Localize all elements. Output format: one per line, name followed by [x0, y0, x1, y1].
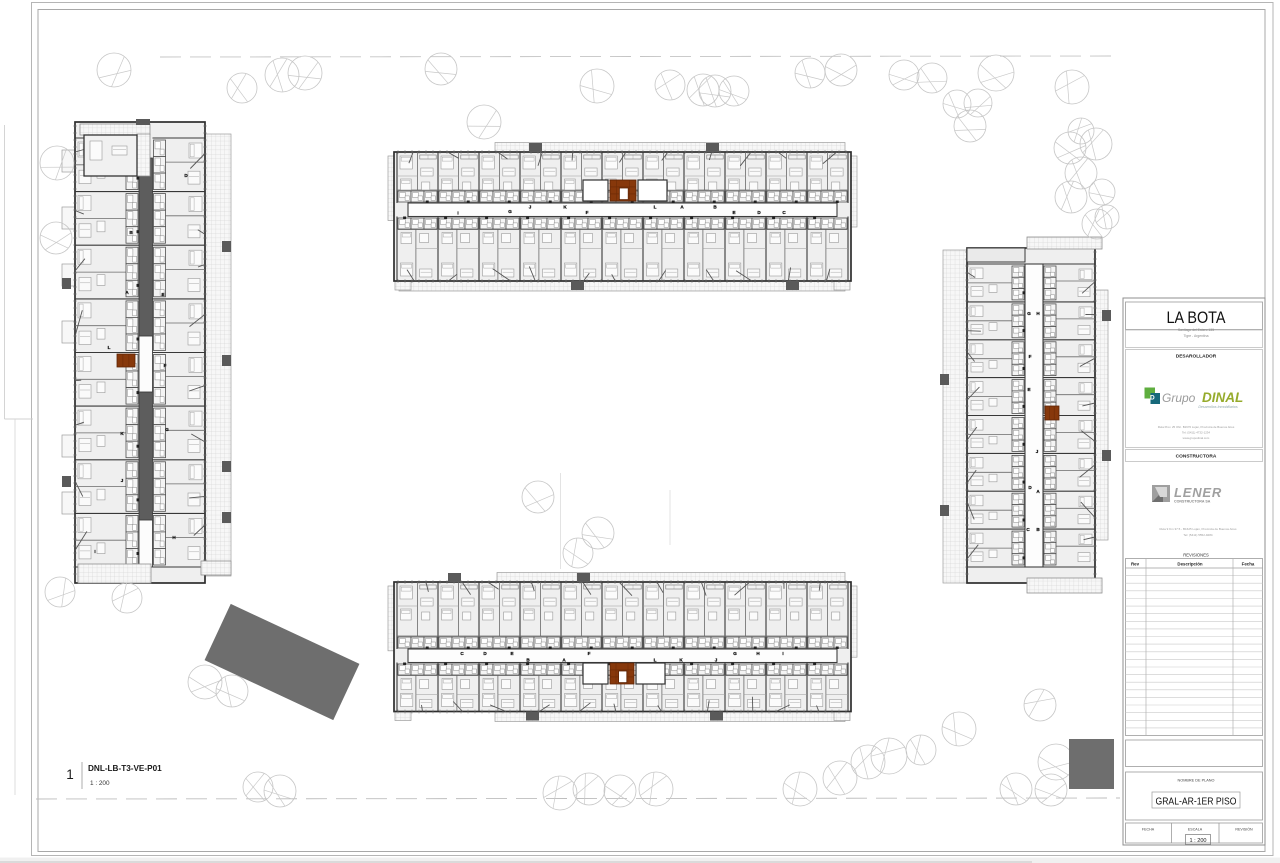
svg-text:Santiago del Estero 135: Santiago del Estero 135: [1178, 328, 1214, 332]
svg-text:1: 1: [66, 767, 74, 782]
svg-text:Tel: (5411) 5552-9284: Tel: (5411) 5552-9284: [1183, 533, 1212, 537]
svg-text:Rev: Rev: [1131, 562, 1140, 567]
svg-text:G: G: [508, 209, 512, 214]
svg-text:J: J: [529, 205, 532, 210]
svg-text:Desarrollos Inmobiliarios: Desarrollos Inmobiliarios: [1198, 405, 1238, 409]
svg-text:G: G: [165, 427, 169, 432]
svg-text:I: I: [457, 211, 458, 216]
svg-text:DESAROLLADOR: DESAROLLADOR: [1176, 354, 1217, 360]
svg-text:Tel: (5411) 4732-1234: Tel: (5411) 4732-1234: [1182, 431, 1210, 435]
svg-text:F: F: [1029, 354, 1032, 359]
svg-text:Ruta Prov. 25 Ofic. B1670 Luja: Ruta Prov. 25 Ofic. B1670 Lujan, Provinc…: [1158, 425, 1235, 429]
svg-text:E: E: [510, 651, 513, 656]
svg-text:CONSTRUCTORA SA: CONSTRUCTORA SA: [1174, 500, 1211, 504]
svg-text:Grupo: Grupo: [1162, 391, 1196, 405]
svg-text:L: L: [108, 345, 111, 350]
svg-text:E: E: [1027, 387, 1030, 392]
svg-text:I: I: [94, 549, 95, 554]
svg-text:D: D: [1150, 395, 1155, 402]
svg-text:FECHA: FECHA: [1142, 828, 1155, 832]
svg-text:Tigre - Argentina: Tigre - Argentina: [1184, 334, 1209, 338]
svg-text:NOMBRE DE PLANO: NOMBRE DE PLANO: [1178, 779, 1215, 783]
svg-text:CONSTRUCTORA: CONSTRUCTORA: [1176, 454, 1217, 460]
svg-text:F: F: [588, 651, 591, 656]
svg-text:LENER: LENER: [1174, 485, 1222, 500]
svg-text:L: L: [654, 205, 657, 210]
svg-text:REVISIONES: REVISIONES: [1183, 553, 1209, 558]
svg-text:DINAL: DINAL: [1202, 390, 1243, 405]
svg-text:F: F: [164, 363, 167, 368]
svg-text:Descripción: Descripción: [1177, 562, 1202, 567]
svg-text:www.grupodinal.com: www.grupodinal.com: [1183, 436, 1210, 440]
svg-text:G: G: [1027, 311, 1031, 316]
svg-text:J: J: [1036, 449, 1039, 454]
svg-text:G: G: [733, 651, 737, 656]
svg-text:GRAL-AR-1ER PISO: GRAL-AR-1ER PISO: [1156, 797, 1237, 808]
svg-text:F: F: [586, 210, 589, 215]
svg-text:J: J: [121, 478, 124, 483]
svg-text:ESCALA: ESCALA: [1188, 828, 1203, 832]
svg-text:Ruta 9 Km 37.5 - B1625 Lujan,: Ruta 9 Km 37.5 - B1625 Lujan, Provincia …: [1159, 527, 1237, 531]
svg-text:Fecha: Fecha: [1242, 562, 1255, 567]
svg-text:I: I: [782, 651, 783, 656]
svg-text:J: J: [715, 658, 718, 663]
svg-text:LA BOTA: LA BOTA: [1167, 309, 1226, 327]
svg-text:E: E: [161, 292, 164, 297]
svg-text:DNL-LB-T3-VE-P01: DNL-LB-T3-VE-P01: [88, 764, 162, 773]
svg-text:REVISIÓN: REVISIÓN: [1235, 827, 1253, 832]
svg-text:E: E: [732, 210, 735, 215]
svg-text:1 : 200: 1 : 200: [1189, 838, 1206, 844]
svg-text:L: L: [654, 658, 657, 663]
svg-text:1 : 200: 1 : 200: [90, 780, 110, 787]
